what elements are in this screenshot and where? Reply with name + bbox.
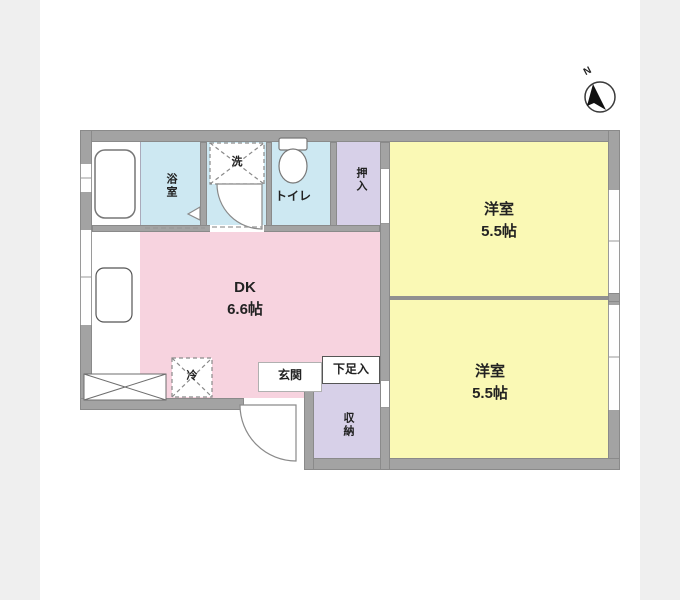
floor-plan-page: 浴室 洗 トイレ 押入 洋室 5.5帖 DK 6.6帖 冷 玄関 下足入 収納 …: [0, 0, 680, 600]
entrance-label: 玄関: [260, 368, 320, 384]
counter-x-box-icon: [84, 374, 166, 400]
washroom-door-swing-icon: [217, 184, 262, 229]
fridge-label: 冷: [180, 369, 204, 385]
western-top-name: 洋室: [429, 199, 569, 221]
toilet-icon: [279, 138, 307, 183]
bath-door-arrow-icon: [188, 207, 200, 220]
compass-icon: [585, 82, 615, 112]
fixtures-layer: [0, 0, 680, 600]
dk-size: 6.6帖: [175, 299, 315, 321]
bathtub-icon: [95, 150, 135, 218]
western-bottom-name: 洋室: [420, 361, 560, 383]
western-bottom-size: 5.5帖: [420, 383, 560, 405]
toilet-label: トイレ: [264, 189, 322, 205]
western-top-size: 5.5帖: [429, 221, 569, 243]
bath-label: 浴室: [158, 160, 182, 212]
washer-label: 洗: [225, 155, 249, 171]
kitchen-sink-icon: [96, 268, 132, 322]
dk-name: DK: [175, 277, 315, 299]
storage-label: 収納: [335, 400, 359, 450]
oshiire-label: 押入: [348, 152, 372, 208]
shoe-box-label: 下足入: [322, 362, 380, 378]
entrance-door-swing-icon: [240, 405, 296, 461]
